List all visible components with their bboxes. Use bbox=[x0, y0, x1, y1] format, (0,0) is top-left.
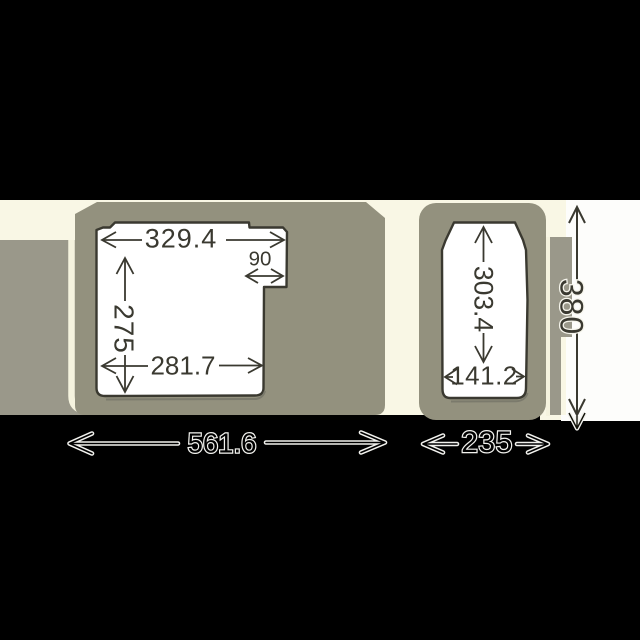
svg-text:275: 275 bbox=[109, 304, 140, 354]
svg-text:141.2: 141.2 bbox=[450, 361, 518, 391]
svg-text:561.6: 561.6 bbox=[188, 428, 257, 459]
svg-text:329.4: 329.4 bbox=[145, 224, 218, 254]
svg-text:90: 90 bbox=[249, 248, 272, 271]
svg-text:303.4: 303.4 bbox=[469, 266, 499, 332]
svg-text:235: 235 bbox=[461, 426, 513, 459]
svg-text:281.7: 281.7 bbox=[150, 351, 215, 381]
svg-text:380: 380 bbox=[554, 279, 590, 335]
